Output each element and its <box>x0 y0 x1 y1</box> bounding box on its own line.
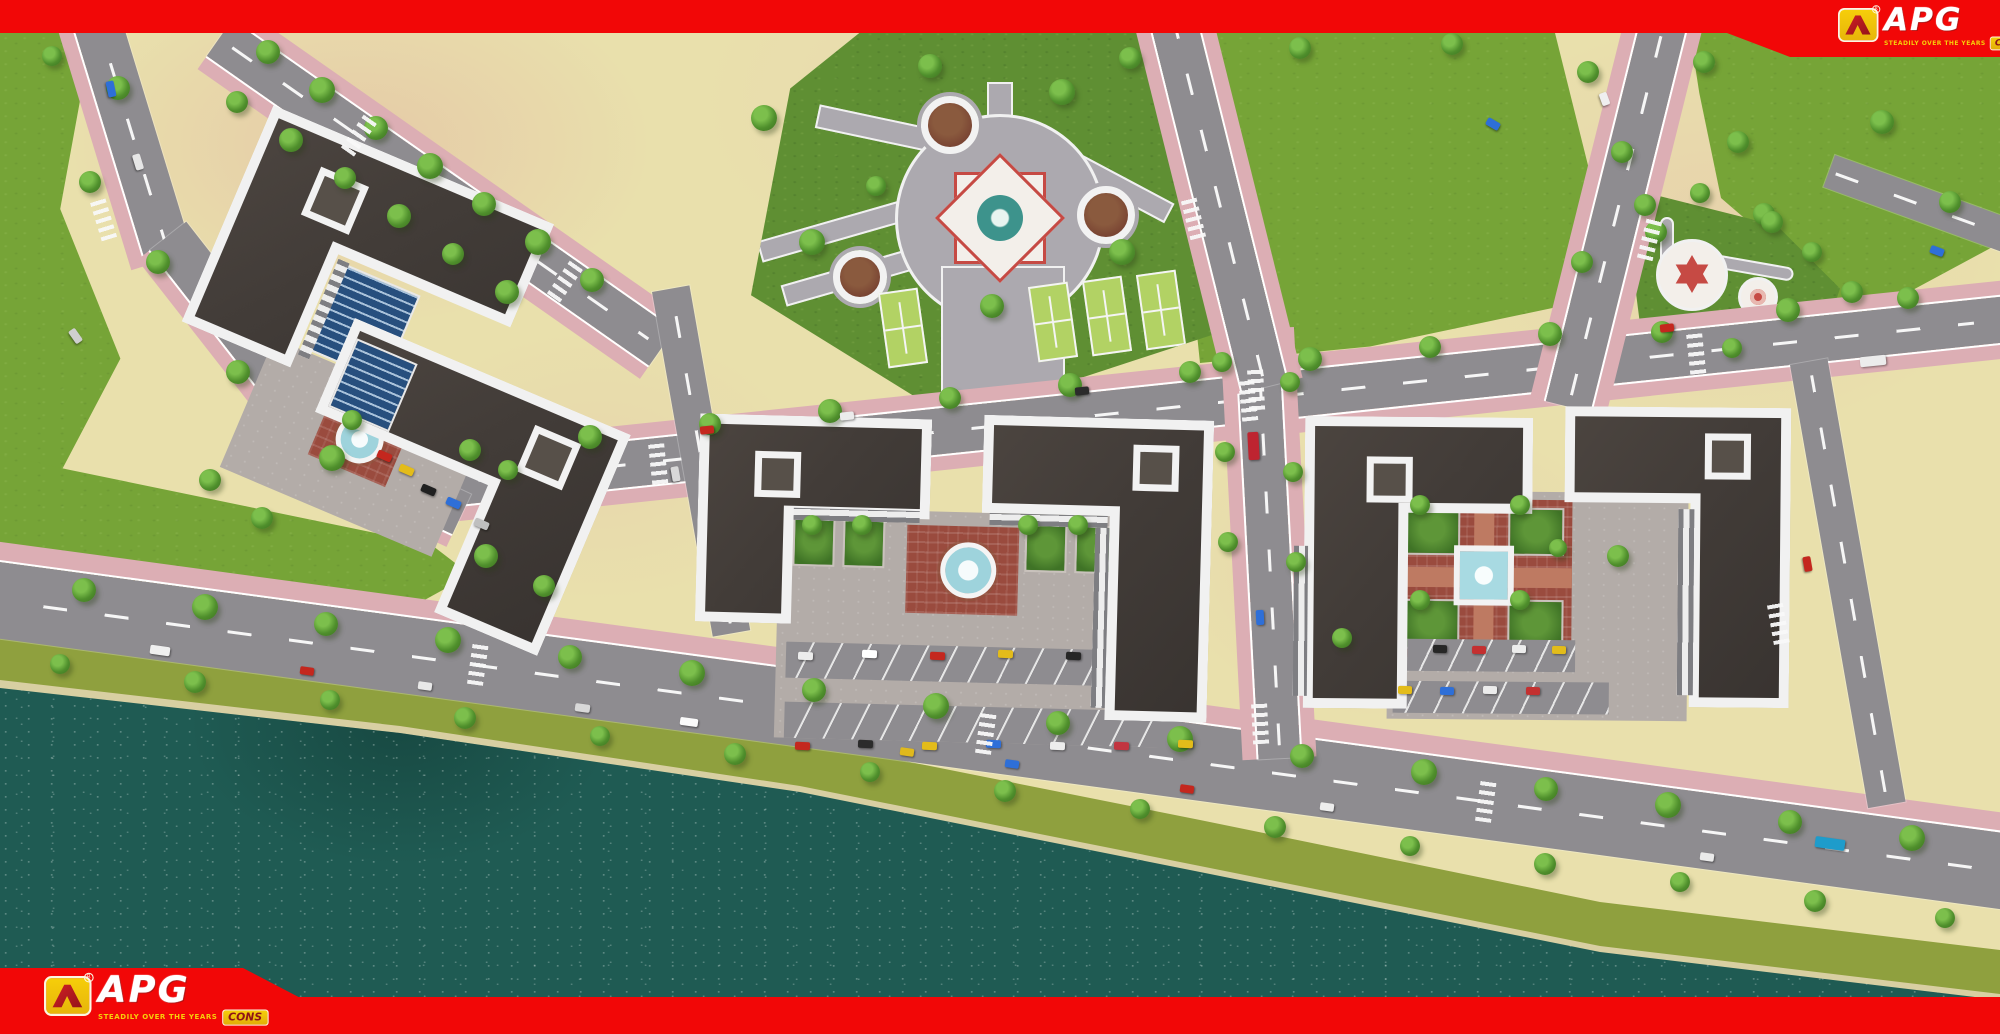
parking-row <box>1393 681 1609 715</box>
brand-name: APG <box>98 976 269 1006</box>
planter <box>792 518 835 567</box>
flower-bed <box>1077 186 1135 244</box>
masterplan-render: R APG STEADILY OVER THE YEARS CONS R APG… <box>0 0 2000 1034</box>
medallion-icon <box>1750 289 1766 305</box>
apg-logo-top-right: R APG STEADILY OVER THE YEARS CONS <box>1838 8 2000 50</box>
lane-dashes <box>1257 342 1281 746</box>
tennis-court <box>1082 276 1132 357</box>
brand-tagline: STEADILY OVER THE YEARS <box>98 1013 217 1022</box>
brand-cons-badge: CONS <box>222 1009 269 1025</box>
planter <box>1404 507 1460 555</box>
tennis-court <box>1136 270 1186 351</box>
facade-windows <box>1293 546 1308 696</box>
parking-row <box>1407 639 1575 672</box>
roof-lightwell <box>1705 433 1751 479</box>
flower-bed <box>921 96 979 154</box>
apg-chevron-icon <box>50 982 85 1009</box>
brand-cons-badge: CONS <box>1989 36 2000 50</box>
registered-icon: R <box>1872 5 1880 13</box>
fountain-square <box>1454 545 1515 606</box>
roof-lightwell <box>1366 456 1412 502</box>
apg-mark-icon: R <box>44 976 92 1016</box>
brand-name: APG <box>1884 8 2000 34</box>
brand-tagline: STEADILY OVER THE YEARS <box>1884 40 1986 47</box>
roof-lightwell <box>754 451 801 498</box>
plaza-circle <box>1656 239 1728 311</box>
facade-windows <box>1677 509 1695 695</box>
star-fountain-plaza <box>940 158 1060 278</box>
frame-bar-bottom <box>0 997 2000 1034</box>
planter <box>1508 508 1564 556</box>
apg-mark-icon: R <box>1838 8 1878 42</box>
apg-logo-bottom-left: R APG STEADILY OVER THE YEARS CONS <box>44 976 269 1026</box>
tennis-court <box>878 288 928 369</box>
fountain-icon <box>977 195 1023 241</box>
roof-lightwell <box>1132 445 1179 492</box>
building-complex-east <box>1291 386 1802 726</box>
building-complex-middle <box>684 405 1223 755</box>
planter <box>842 519 885 568</box>
apg-chevron-icon <box>1844 14 1873 37</box>
planter <box>1024 524 1067 573</box>
registered-icon: R <box>84 973 94 983</box>
